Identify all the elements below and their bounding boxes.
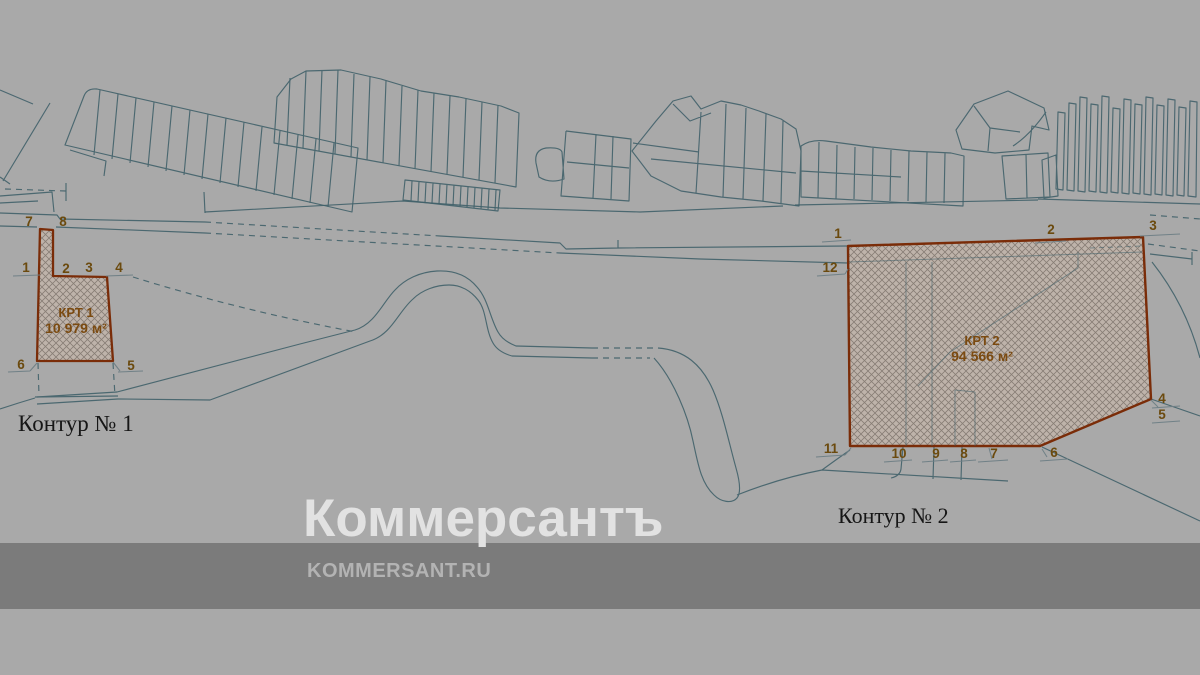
c2-vertex-12: 12 <box>822 260 837 275</box>
c1-vertex-6: 6 <box>17 357 25 372</box>
c1-vertex-1: 1 <box>22 260 30 275</box>
c2-vertex-11: 11 <box>824 441 839 456</box>
parcel-block-4 <box>632 96 801 206</box>
parcel-block-2-strips <box>287 70 498 183</box>
parcel-house-pentagon <box>956 91 1050 199</box>
c2-vertex-5: 5 <box>1158 407 1166 422</box>
c1-vertex-5: 5 <box>127 358 135 373</box>
c2-vertex-6: 6 <box>1050 445 1058 460</box>
contour2-caption: Контур № 2 <box>838 503 949 529</box>
c2-vertex-4: 4 <box>1158 391 1166 406</box>
parcel-block-west-outline <box>65 89 358 213</box>
contour1-caption: Контур № 1 <box>18 411 134 437</box>
c2-vertex-2: 2 <box>1047 222 1055 237</box>
parcel-block-east-strips <box>1038 96 1200 204</box>
c1-vertex-8: 8 <box>59 214 67 229</box>
parcel-block-west-strips <box>94 90 334 207</box>
c2-krt-area: 94 566 м² <box>951 348 1013 364</box>
c1-krt-area: 10 979 м² <box>45 320 107 336</box>
river-band <box>37 271 740 502</box>
c1-vertex-3: 3 <box>85 260 93 275</box>
c1-vertex-2: 2 <box>62 261 70 276</box>
cadastral-plan-page: 7 8 1 2 3 4 5 6 1 2 3 4 5 6 7 8 9 10 11 … <box>0 0 1200 675</box>
c1-krt-title: КРТ 1 <box>58 305 93 320</box>
c2-vertex-7: 7 <box>990 446 998 461</box>
kommersant-logo: Коммерсантъ <box>303 492 664 545</box>
c1-vertex-4: 4 <box>115 260 123 275</box>
c2-vertex-10: 10 <box>891 446 906 461</box>
c2-vertex-1: 1 <box>834 226 842 241</box>
watermark-band <box>0 543 1200 609</box>
c2-krt-title: КРТ 2 <box>964 333 999 348</box>
kommersant-site-label: KOMMERSANT.RU <box>307 560 491 583</box>
parcel-comb-row <box>403 180 500 211</box>
c1-vertex-7: 7 <box>25 214 33 229</box>
parcel-block-5 <box>801 141 964 206</box>
c2-vertex-8: 8 <box>960 446 968 461</box>
c2-vertex-9: 9 <box>932 446 940 461</box>
parcel-block-2-outline <box>274 70 519 187</box>
parcel-block-3 <box>536 131 631 201</box>
parcel-blocks <box>65 70 1200 213</box>
contour1-polygon <box>37 229 113 361</box>
c2-vertex-3: 3 <box>1149 218 1157 233</box>
